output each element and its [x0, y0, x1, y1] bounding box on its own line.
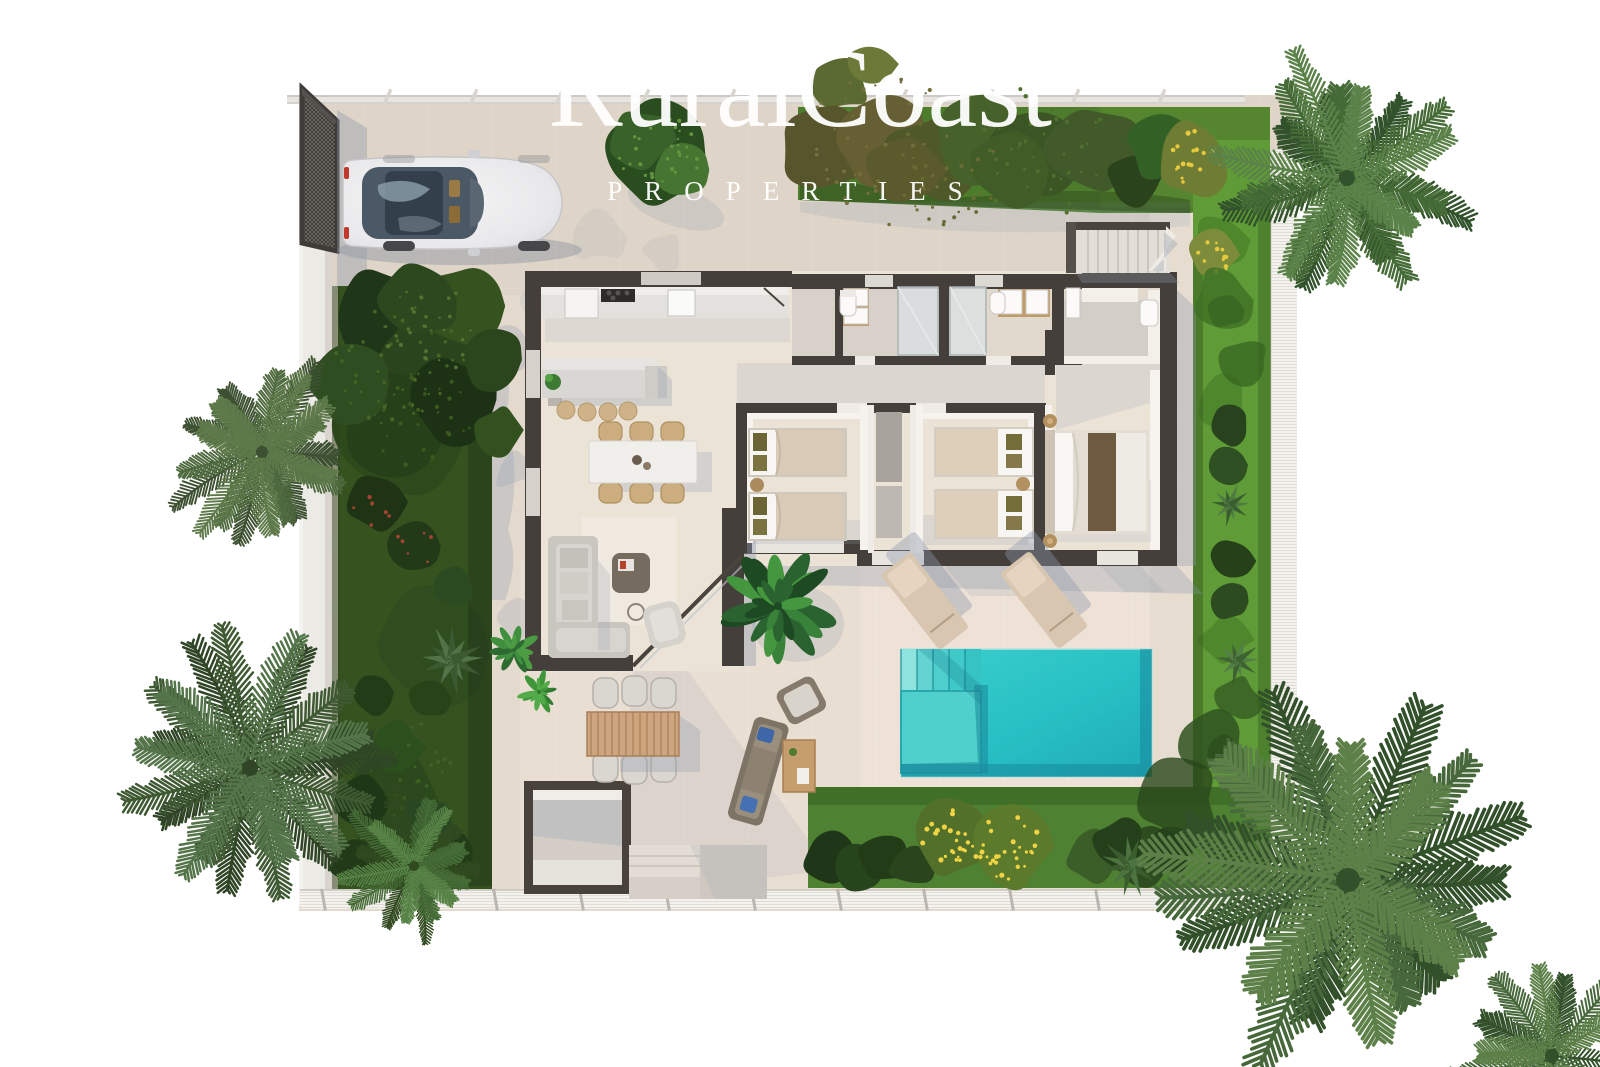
- svg-text:RuralCoast: RuralCoast: [548, 27, 1052, 151]
- svg-text:PROPERTIES: PROPERTIES: [607, 176, 984, 206]
